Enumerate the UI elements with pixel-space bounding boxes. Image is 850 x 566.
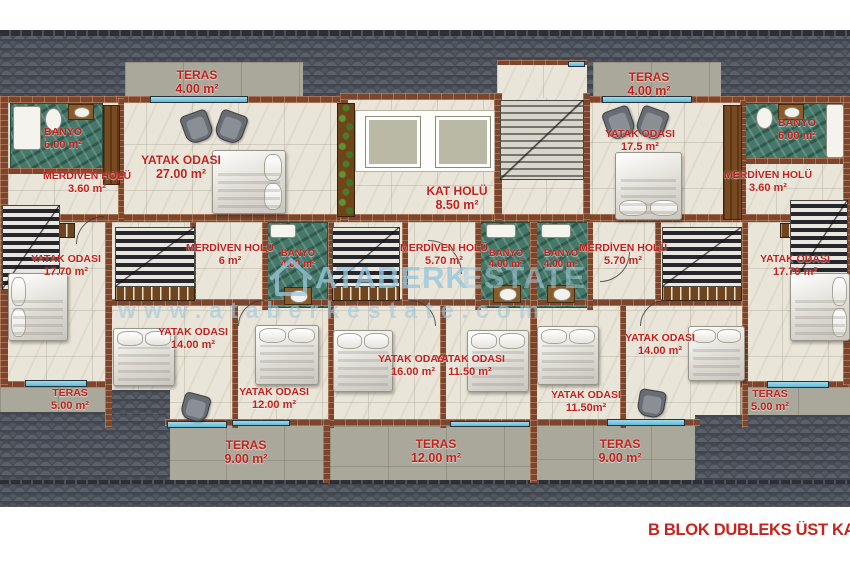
- room-area: 12.00 m²: [386, 451, 486, 466]
- room-name: BANYO: [757, 117, 837, 130]
- room-area: 6.00 m²: [23, 139, 103, 152]
- shower-tray: [486, 224, 516, 238]
- glass-door-terrace-bottom-center: [450, 421, 530, 427]
- room-label-yatak-14-left: YATAK ODASI 14.00 m²: [143, 326, 243, 352]
- watermark-brand-bold: ATABERK: [315, 260, 469, 296]
- bed-yatak-1150-right: [537, 326, 599, 385]
- room-area: 9.00 m²: [196, 452, 296, 467]
- room-label-yatak-mid-right: YATAK ODASI 17.70 m²: [745, 253, 845, 279]
- window-left: [366, 117, 420, 167]
- room-name: TERAS: [720, 388, 820, 401]
- glass-door-terrace-side-right: [767, 381, 829, 388]
- room-area: 3.60 m²: [708, 182, 828, 195]
- room-label-banyo-top-left: BANYO 6.00 m²: [23, 126, 103, 152]
- room-name: YATAK ODASI: [420, 353, 520, 366]
- room-name: KAT HOLÜ: [407, 184, 507, 198]
- glass-door-terrace-bottom-right: [607, 419, 685, 426]
- room-label-yatak-1150-left: YATAK ODASI 11.50 m²: [420, 353, 520, 379]
- room-area: 9.00 m²: [570, 451, 670, 466]
- room-area: 17.5 m²: [590, 141, 690, 154]
- shower-tray: [541, 224, 571, 238]
- room-label-yatak-1150-right: YATAK ODASI 11.50m²: [536, 389, 636, 415]
- room-label-teras-bottom-right: TERAS 9.00 m²: [570, 437, 670, 466]
- bed-yatak-mid-left: [8, 273, 68, 341]
- bed-yatak-12: [255, 325, 319, 385]
- room-area: 4.00 m²: [599, 84, 699, 99]
- wall-banyo-tr-bottom: [743, 158, 850, 164]
- vanity-sink: [68, 104, 94, 120]
- room-name: MERDİVEN HOLÜ: [563, 242, 683, 255]
- staircase-top-center: [500, 100, 584, 180]
- room-label-teras-side-right: TERAS 5.00 m²: [720, 388, 820, 414]
- roof-bottom-strip: [0, 483, 850, 507]
- wall-terrace-divider-left: [323, 419, 330, 483]
- wall-outer-top-center: [345, 93, 500, 100]
- room-area: 27.00 m²: [131, 167, 231, 182]
- room-area: 8.50 m²: [407, 198, 507, 213]
- glass-door-terrace-side-left: [25, 380, 87, 387]
- room-name: YATAK ODASI: [745, 253, 845, 266]
- wall-v-stair-right: [583, 93, 590, 222]
- room-label-merdiven-top-left: MERDİVEN HOLÜ 3.60 m²: [27, 170, 147, 196]
- room-area: 5.00 m²: [720, 401, 820, 414]
- watermark-url: www.ataberkestate.com: [118, 297, 547, 324]
- room-label-teras-bottom-center: TERAS 12.00 m²: [386, 437, 486, 466]
- bed-yatak-17-5: [615, 152, 682, 220]
- bed-yatak-mid-right: [790, 273, 850, 341]
- room-name: TERAS: [147, 68, 247, 82]
- room-name: TERAS: [20, 387, 120, 400]
- room-area: 11.50 m²: [420, 366, 520, 379]
- room-area: 3.60 m²: [27, 183, 147, 196]
- room-label-yatak-27: YATAK ODASI 27.00 m²: [131, 153, 231, 182]
- room-area: 14.00 m²: [610, 345, 710, 358]
- glass-stairwell-window: [568, 61, 585, 67]
- room-name: YATAK ODASI: [143, 326, 243, 339]
- roof-bottom-ridge: [0, 480, 850, 484]
- room-area: 6.00 m²: [757, 130, 837, 143]
- room-name: YATAK ODASI: [224, 386, 324, 399]
- watermark-brand-light: ESTATE: [462, 260, 586, 296]
- room-name: TERAS: [570, 437, 670, 451]
- room-name: TERAS: [196, 438, 296, 452]
- shower-tray: [270, 224, 296, 238]
- watermark-house-icon: [268, 252, 314, 300]
- plan-title: B BLOK DUBLEKS ÜST KAT P: [648, 521, 850, 540]
- room-name: BANYO: [23, 126, 103, 139]
- room-name: YATAK ODASI: [131, 153, 231, 167]
- room-label-yatak-12: YATAK ODASI 12.00 m²: [224, 386, 324, 412]
- room-name: BANYO: [476, 248, 536, 259]
- room-area: 11.50m²: [536, 402, 636, 415]
- room-label-teras-bottom-left: TERAS 9.00 m²: [196, 438, 296, 467]
- room-name: MERDİVEN HOLÜ: [708, 169, 828, 182]
- room-label-yatak-14-right: YATAK ODASI 14.00 m²: [610, 332, 710, 358]
- room-name: YATAK ODASI: [16, 253, 116, 266]
- room-label-yatak-17-5: YATAK ODASI 17.5 m²: [590, 128, 690, 154]
- roof-top-ridge: [0, 30, 850, 36]
- room-name: YATAK ODASI: [536, 389, 636, 402]
- room-name: YATAK ODASI: [590, 128, 690, 141]
- wardrobe-top-right: [723, 105, 742, 220]
- glass-door-terrace-bottom-left: [167, 421, 227, 428]
- room-area: 17.70 m²: [16, 266, 116, 279]
- room-name: YATAK ODASI: [610, 332, 710, 345]
- floor-plan-canvas: TERAS 4.00 m² BANYO 6.00 m² MERDİVEN HOL…: [0, 0, 850, 566]
- room-name: TERAS: [386, 437, 486, 451]
- glass-door-room-12: [232, 420, 290, 426]
- room-label-banyo-top-right: BANYO 6.00 m²: [757, 117, 837, 143]
- planter-strip: [337, 103, 355, 217]
- room-area: 12.00 m²: [224, 399, 324, 412]
- room-label-yatak-mid-left: YATAK ODASI 17.70 m²: [16, 253, 116, 279]
- room-area: 17.70 m²: [745, 266, 845, 279]
- room-label-teras-top-left: TERAS 4.00 m²: [147, 68, 247, 97]
- room-area: 4.00 m²: [147, 82, 247, 97]
- room-label-merdiven-top-right: MERDİVEN HOLÜ 3.60 m²: [708, 169, 828, 195]
- window-right: [436, 117, 490, 167]
- room-label-kat-holu: KAT HOLÜ 8.50 m²: [407, 184, 507, 213]
- room-label-teras-top-right: TERAS 4.00 m²: [599, 70, 699, 99]
- floor-stair-top-landing: [497, 64, 587, 98]
- room-area: 14.00 m²: [143, 339, 243, 352]
- room-name: MERDİVEN HOLÜ: [27, 170, 147, 183]
- closet-under-stairs-right: [662, 286, 742, 301]
- room-name: TERAS: [599, 70, 699, 84]
- room-area: 5.00 m²: [20, 400, 120, 413]
- room-label-teras-side-left: TERAS 5.00 m²: [20, 387, 120, 413]
